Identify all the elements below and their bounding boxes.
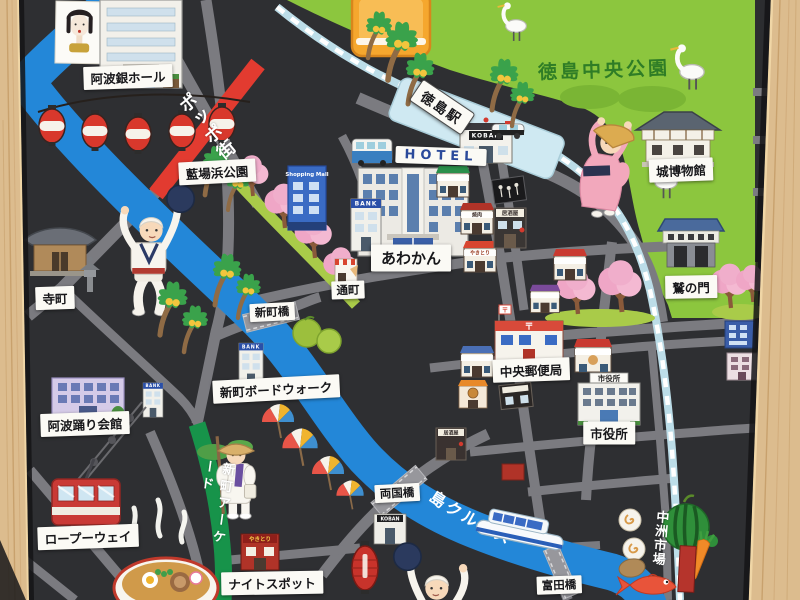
dark-shop-icon	[499, 382, 533, 409]
label-ryogoku-bridge: 両国橋	[374, 483, 419, 503]
label-washi-gate: 鷲の門	[665, 275, 717, 299]
hotel-sign: HOTEL	[395, 146, 487, 166]
yakitori-shop-bottom-icon: やきとり	[241, 534, 279, 570]
snack-shop-icon	[553, 249, 587, 280]
map-artwork: BANK	[0, 0, 800, 600]
shopping-mall-sign: Shopping Mall	[285, 172, 328, 178]
okonomiyaki-shop-icon	[574, 339, 612, 372]
illustrated-tokushima-map-board: BANK	[0, 0, 800, 600]
post-office-sign: 〒	[524, 323, 533, 333]
label-city-hall: 市役所	[583, 422, 635, 445]
yakiniku-sign: 焼肉	[472, 212, 482, 219]
office-building-icon	[725, 321, 755, 348]
label-awaodori-hall: 阿波踊り会館	[40, 411, 130, 437]
label-shinmachi-bridge: 新町橋	[249, 302, 294, 322]
yakiniku-shop-icon	[460, 203, 494, 234]
shopping-mall-building: Shopping Mall	[285, 166, 328, 230]
label-teramachi: 寺町	[35, 286, 75, 310]
koban-mini-icon: KOBAN	[374, 514, 406, 544]
izakaya-building-icon: 居酒屋	[494, 208, 526, 248]
small-shop-icon	[460, 346, 494, 377]
bank-building-icon	[143, 383, 163, 417]
label-tomida-bridge: 富田橋	[536, 575, 581, 595]
small-stall-icon	[502, 464, 524, 480]
burger-shop-icon	[458, 380, 488, 408]
label-torimachi: 通町	[331, 280, 365, 299]
yakitori-sign: やきとり	[470, 250, 490, 257]
central-park-title: 徳島中央公園	[538, 53, 671, 85]
label-castle-museum: 城博物館	[649, 157, 714, 182]
post-flag-icon: 〒	[502, 306, 509, 314]
bus-icon	[352, 139, 392, 166]
label-awagin-hall: 阿波銀ホール	[83, 64, 173, 90]
label-central-post-office: 中央郵便局	[492, 357, 569, 383]
label-night-spot: ナイトスポット	[221, 571, 323, 596]
izakaya-shop-icon: 居酒屋	[436, 428, 466, 460]
yakitori-shop-icon	[463, 241, 497, 272]
izakaya-sign: 居酒屋	[443, 429, 458, 436]
convenience-store-icon	[436, 166, 470, 197]
park-monument-icon	[352, 0, 430, 56]
small-shop-icon	[530, 285, 561, 313]
yakitori-sign: やきとり	[249, 535, 271, 543]
izakaya-sign: 居酒屋	[502, 209, 519, 217]
washi-gate-building	[658, 219, 724, 267]
city-hall-roof-sign: 市役所	[598, 373, 621, 383]
bank-building-icon	[351, 199, 381, 251]
puppet-head-icon	[55, 1, 104, 64]
label-awakan: あわかん	[371, 245, 451, 272]
awaodori-poster-icon	[491, 176, 526, 204]
crepe-kiosk-icon	[335, 259, 358, 283]
label-ropeway: ロープーウェイ	[37, 524, 139, 551]
koban-sign: KOBAN	[381, 516, 400, 522]
